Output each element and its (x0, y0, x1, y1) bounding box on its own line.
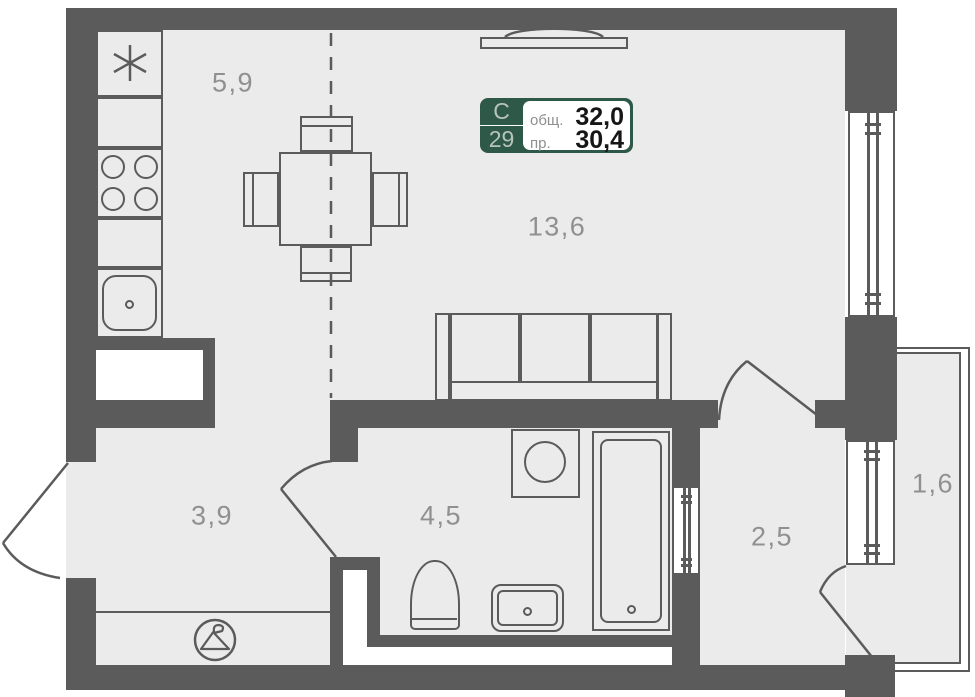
wall-bottom (66, 665, 893, 690)
floor-plan: 5,9 13,6 3,9 4,5 2,5 1,6 С 29 общ. 32,0 … (0, 0, 975, 697)
bathtub (592, 431, 670, 631)
unit-section-letter: С (493, 98, 510, 125)
wall-left-upper (66, 30, 96, 462)
room-label-bathroom: 4,5 (420, 501, 462, 532)
bath-shaft-horizontal (343, 647, 672, 665)
unit-badge-left-column: С 29 (480, 98, 523, 153)
stove-burner-icon (101, 187, 125, 211)
sofa-cushion (520, 313, 590, 383)
entrance-door-swing (3, 463, 68, 578)
wall-bath-left-lower (330, 570, 343, 665)
sofa-cushion (590, 313, 658, 383)
tv-icon (480, 37, 628, 49)
living-area-label: пр. (530, 135, 568, 152)
kitchen-unit-counter-2 (96, 218, 163, 268)
wall-bath-door-sill (330, 557, 380, 570)
wall-bath-left-inner (367, 570, 380, 635)
total-area-row: общ. 32,0 (530, 103, 624, 126)
chair-bottom (300, 246, 352, 282)
chair-left (243, 172, 279, 227)
living-area-value: 30,4 (575, 126, 624, 154)
wall-living-divider (330, 400, 718, 428)
wall-kitchen-shaft-top (96, 338, 215, 350)
wardrobe-front-line (96, 611, 330, 613)
wall-kitchen-shaft-right (203, 350, 215, 400)
kitchen-shaft-void (96, 350, 203, 400)
living-room-window (848, 111, 895, 317)
sofa-armrest-right (657, 313, 672, 401)
wall-right-mid (845, 317, 897, 440)
kitchen-sink-drain (125, 300, 134, 309)
bathtub-drain (627, 605, 636, 614)
sofa-armrest-left (435, 313, 450, 401)
balcony-floor (895, 352, 961, 664)
unit-number: 29 (489, 126, 515, 153)
room-label-corridor: 2,5 (751, 522, 793, 553)
wall-bath-bottom (367, 635, 672, 647)
room-label-balcony: 1,6 (912, 469, 954, 500)
wall-top (66, 8, 855, 30)
wall-right-upper (845, 8, 897, 111)
unit-info-badge: С 29 общ. 32,0 пр. 30,4 (480, 98, 633, 153)
living-area-row: пр. 30,4 (530, 126, 624, 149)
wall-living-divider-stub (815, 400, 845, 428)
washing-machine-drum (524, 441, 566, 483)
dining-table (279, 152, 372, 246)
room-label-living: 13,6 (528, 212, 587, 243)
stove-burner-icon (134, 187, 158, 211)
kitchen-unit-counter-1 (96, 97, 163, 148)
floor-entrance-threshold (66, 462, 96, 578)
corridor-window (846, 440, 895, 565)
bathroom-interior-window (672, 486, 700, 575)
room-label-kitchen: 5,9 (212, 68, 254, 99)
sofa-back (450, 381, 658, 401)
wall-kitchen-shaft-bottom (96, 400, 215, 428)
stove-burner-icon (101, 155, 125, 179)
unit-badge-areas-panel: общ. 32,0 пр. 30,4 (523, 101, 630, 150)
sofa-cushion (450, 313, 520, 383)
wall-bath-left-upper (330, 428, 358, 462)
bathroom-sink-drain (523, 607, 532, 616)
kitchen-unit-fridge (96, 30, 163, 97)
room-label-hall: 3,9 (191, 501, 233, 532)
stove-burner-icon (134, 155, 158, 179)
chair-top (300, 116, 353, 152)
chair-right (372, 172, 408, 227)
floor-balcony-threshold (846, 565, 895, 657)
